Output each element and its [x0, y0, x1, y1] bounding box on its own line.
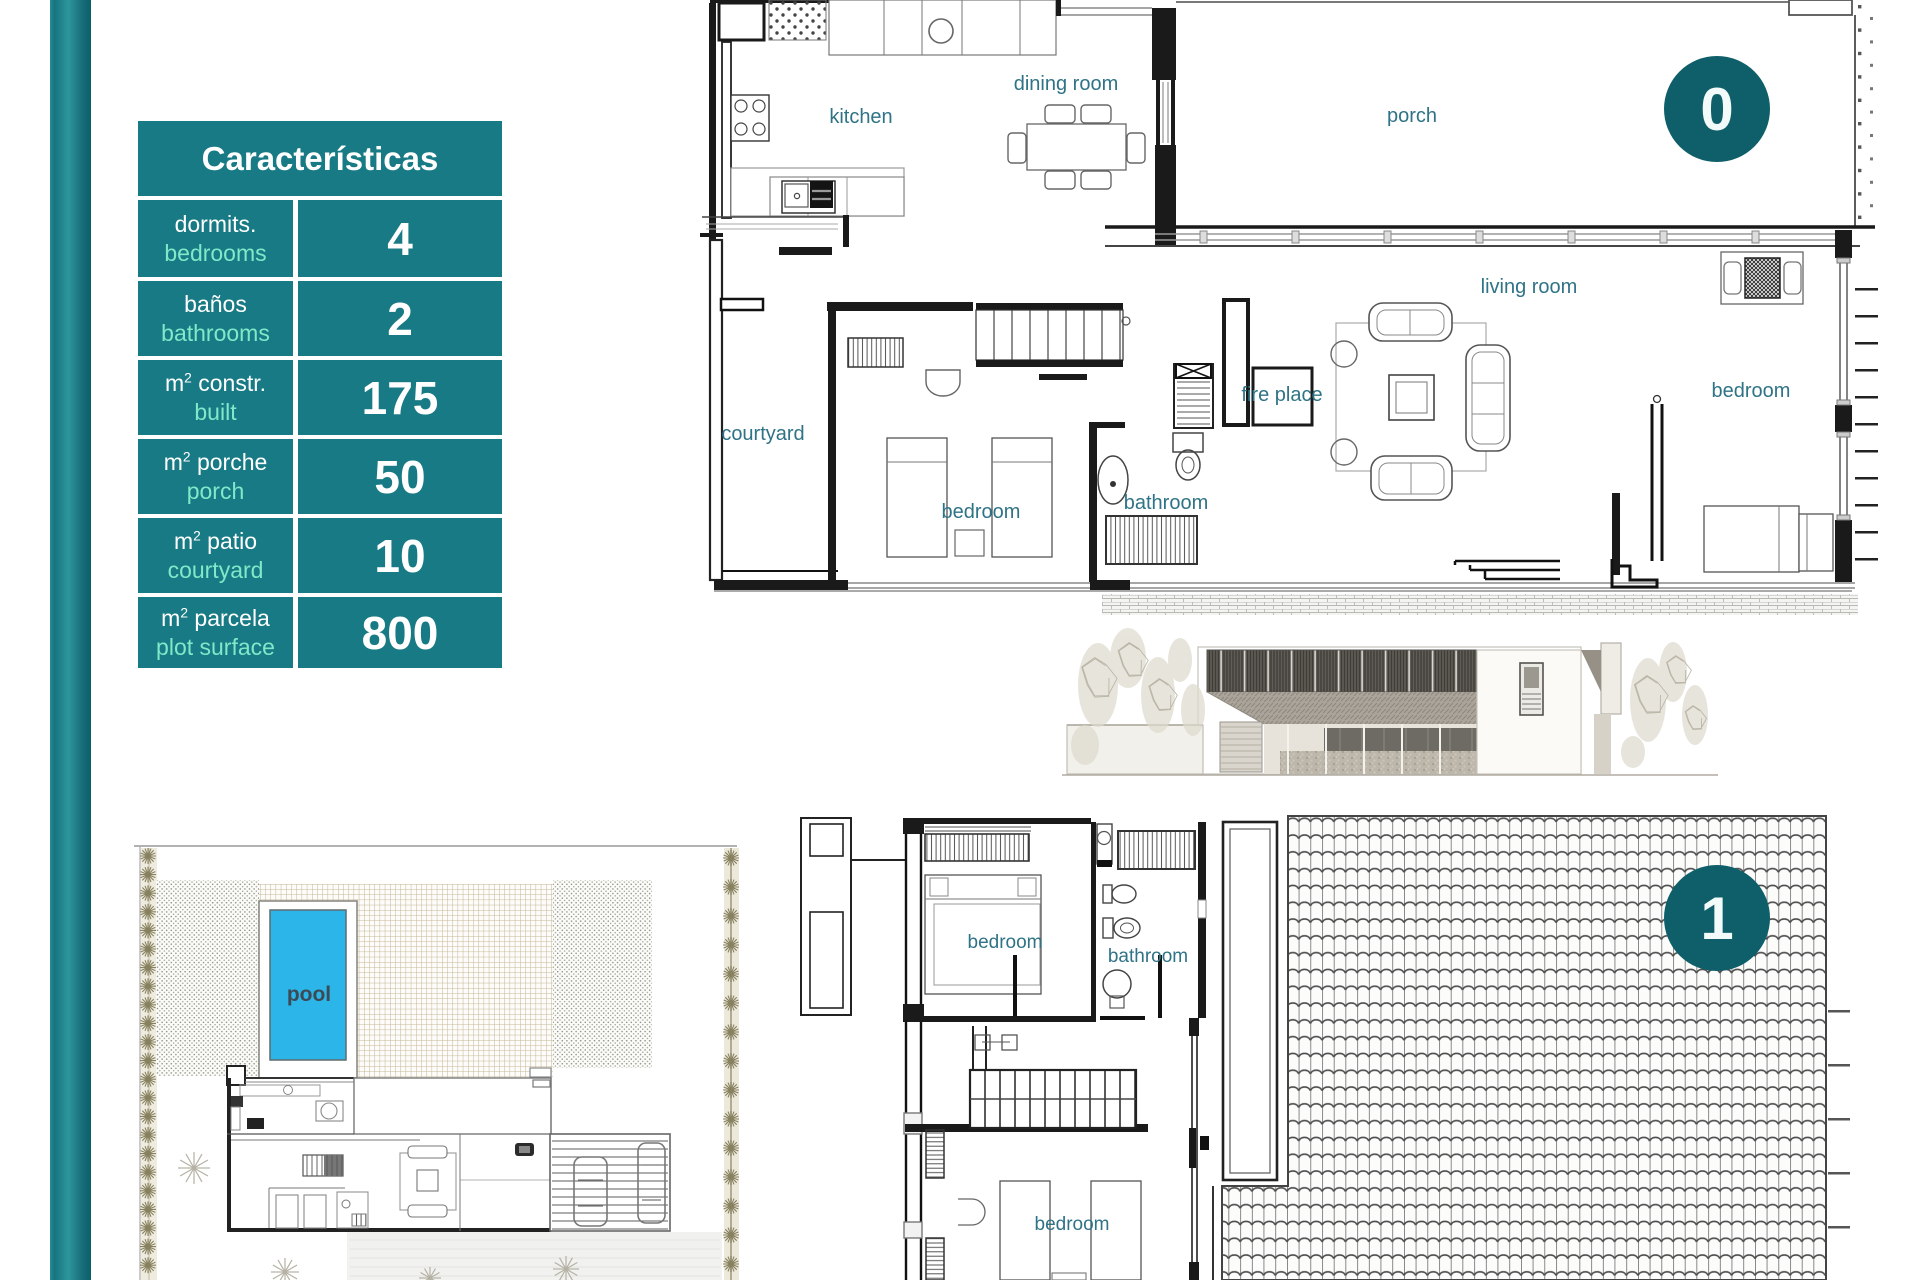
- svg-text:bathroom: bathroom: [1124, 492, 1209, 514]
- svg-text:dining room: dining room: [1014, 73, 1119, 95]
- svg-text:bedroom: bedroom: [1712, 380, 1791, 402]
- svg-text:1: 1: [1700, 885, 1733, 952]
- svg-text:courtyard: courtyard: [721, 423, 804, 445]
- svg-text:bedroom: bedroom: [968, 932, 1043, 953]
- svg-text:bedroom: bedroom: [942, 501, 1021, 523]
- svg-text:porch: porch: [1387, 105, 1437, 127]
- svg-text:bedroom: bedroom: [1035, 1214, 1110, 1235]
- svg-text:0: 0: [1700, 76, 1733, 143]
- svg-text:kitchen: kitchen: [829, 106, 892, 128]
- svg-text:bathroom: bathroom: [1108, 946, 1188, 967]
- svg-text:living room: living room: [1481, 276, 1578, 298]
- svg-text:fire place: fire place: [1241, 384, 1322, 406]
- svg-text:pool: pool: [287, 983, 331, 1006]
